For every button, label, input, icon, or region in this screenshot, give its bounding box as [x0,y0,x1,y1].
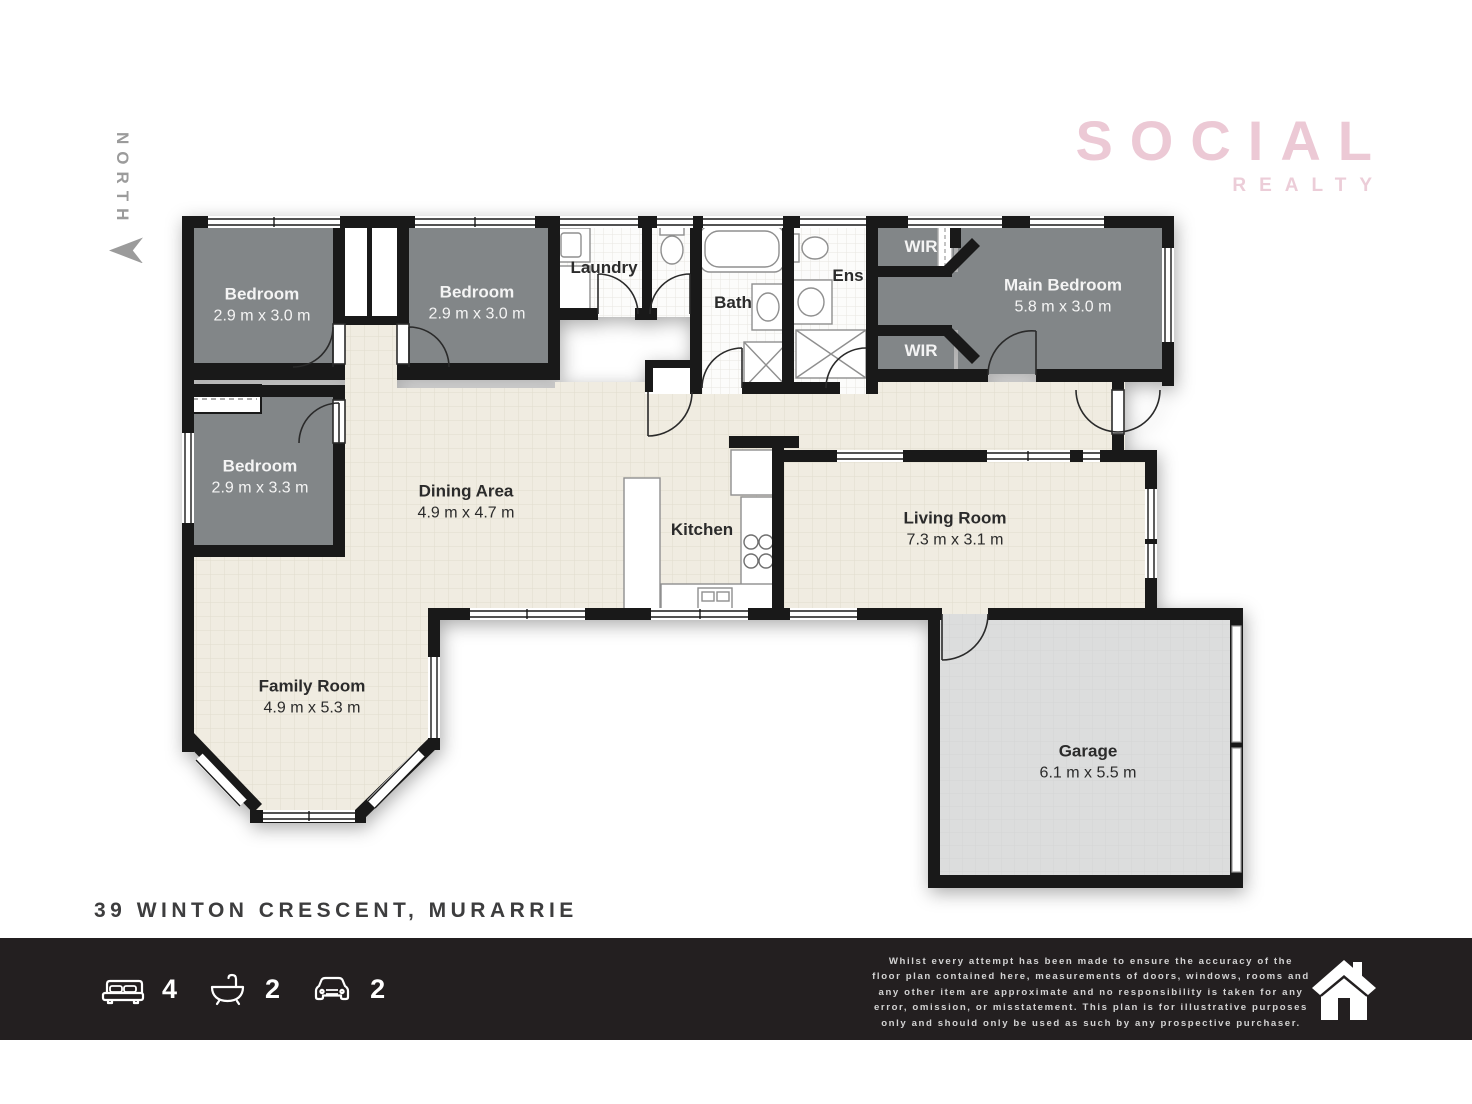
stat-cars: 2 [310,973,385,1005]
disclaimer-line: floor plan contained here, measurements … [862,969,1320,984]
stat-bedrooms: 4 [100,973,177,1005]
property-address: 39 WINTON CRESCENT, MURARRIE [94,899,578,923]
house-icon [1306,956,1384,1024]
kitchen-fridge [731,450,774,495]
disclaimer-text: Whilst every attempt has been made to en… [862,954,1320,1031]
cars-count: 2 [370,974,385,1005]
property-stats: 4 2 2 [100,938,415,1040]
kitchen-island [624,478,660,612]
wc-toilet [661,236,683,264]
floorplan-page: NORTH SOCIAL REALTY [0,0,1472,1104]
garage-door [1232,626,1241,872]
disclaimer-line: only and should only be used as such by … [862,1016,1320,1031]
disclaimer-line: any other item are approximate and no re… [862,985,1320,1000]
disclaimer-line: Whilst every attempt has been made to en… [862,954,1320,969]
bedrooms-count: 4 [162,974,177,1005]
ens-toilet [802,237,828,259]
stat-bathrooms: 2 [207,972,280,1006]
car-icon [310,973,354,1005]
bathrooms-count: 2 [265,974,280,1005]
footer-bar: 4 2 2 Whilst every attempt h [0,938,1472,1040]
disclaimer-line: error, omission, or misstatement. This p… [862,1000,1320,1015]
bed-icon [100,973,146,1005]
bath-icon [207,972,249,1006]
